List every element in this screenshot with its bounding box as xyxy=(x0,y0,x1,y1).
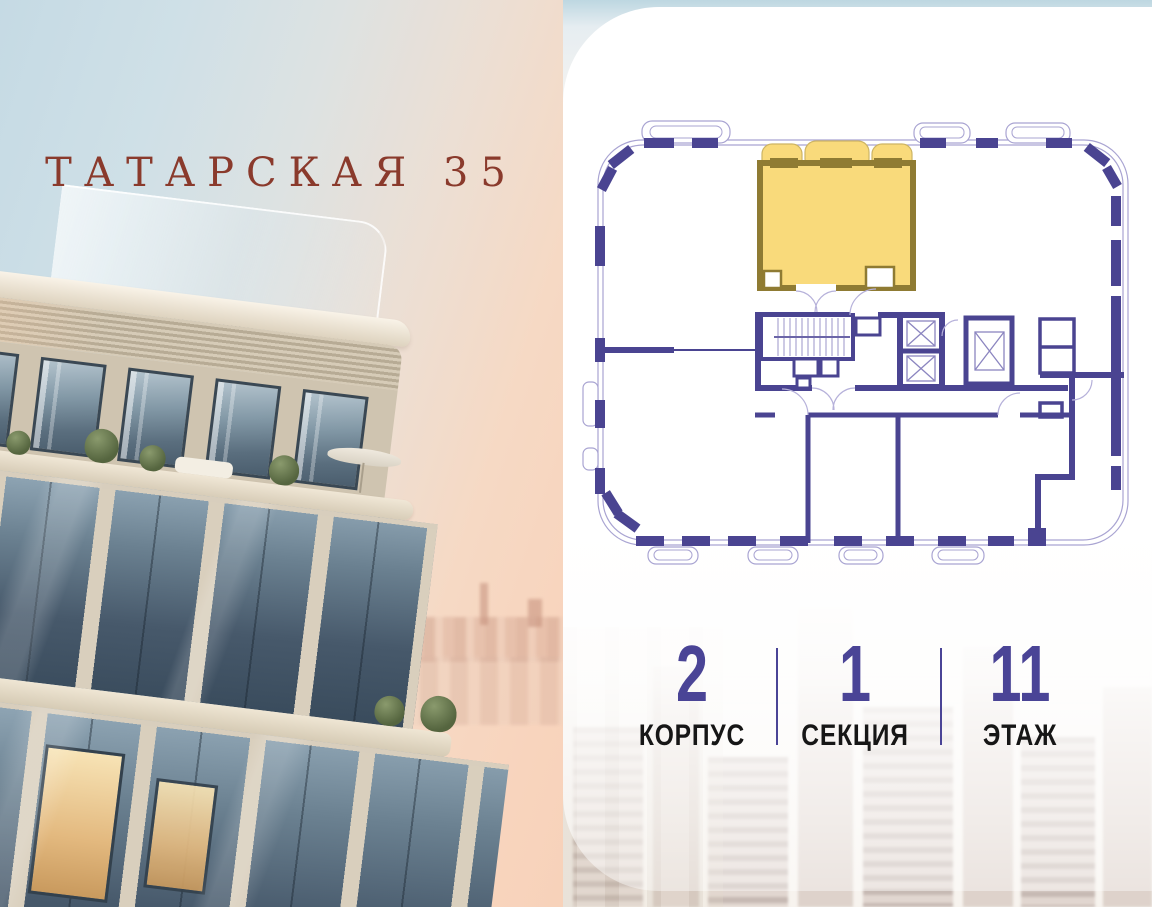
sektsiya-label: СЕКЦИЯ xyxy=(794,719,917,753)
elevators xyxy=(900,315,1012,387)
stat-sektsiya: 1 СЕКЦИЯ xyxy=(780,641,930,753)
project-title: ТАТАРСКАЯ 35 xyxy=(0,150,563,196)
window xyxy=(292,389,369,490)
korpus-label: КОРПУС xyxy=(631,719,754,753)
door-swing xyxy=(796,291,836,312)
divider xyxy=(940,648,942,745)
corridor-walls xyxy=(755,415,1072,543)
etazh-value: 11 xyxy=(966,641,1074,707)
building-photo: ТАТАРСКАЯ 35 xyxy=(0,0,563,907)
terrace-plant xyxy=(419,694,459,734)
building-render xyxy=(0,230,563,907)
stat-etazh: 11 ЭТАЖ xyxy=(945,641,1095,753)
floor-plan-card: 2 КОРПУС 1 СЕКЦИЯ 11 ЭТАЖ xyxy=(563,7,1152,891)
korpus-value: 2 xyxy=(638,641,746,707)
stat-korpus: 2 КОРПУС xyxy=(617,641,767,753)
stairs xyxy=(761,315,880,388)
lit-window xyxy=(28,744,126,903)
utility-rooms xyxy=(1040,319,1074,417)
apartment-window-walls xyxy=(770,158,902,168)
divider xyxy=(776,648,778,745)
etazh-label: ЭТАЖ xyxy=(959,719,1082,753)
apartment-highlight[interactable] xyxy=(760,141,913,312)
real-estate-page: ТАТАРСКАЯ 35 xyxy=(0,0,1152,907)
sektsiya-value: 1 xyxy=(801,641,909,707)
floor-plan[interactable] xyxy=(578,100,1138,570)
lit-window xyxy=(143,778,218,895)
